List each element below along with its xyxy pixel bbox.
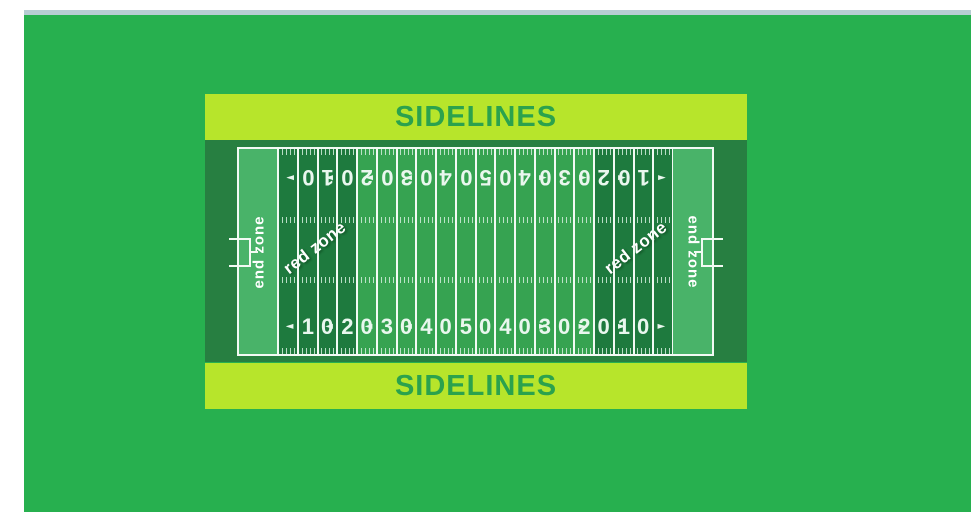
hash-tick bbox=[590, 277, 591, 283]
hash-tick bbox=[452, 348, 453, 354]
hash-tick bbox=[562, 217, 563, 223]
goal-post-right-prong-top bbox=[701, 238, 723, 240]
hash-tick bbox=[345, 277, 346, 283]
hash-tick bbox=[460, 277, 461, 283]
sideline-label-top: SIDELINES bbox=[395, 101, 557, 134]
hash-tick bbox=[420, 348, 421, 354]
hash-tick bbox=[665, 277, 666, 283]
hash-tick bbox=[491, 217, 492, 223]
hash-tick bbox=[523, 149, 524, 155]
hash-tick bbox=[487, 348, 488, 354]
hash-tick bbox=[562, 348, 563, 354]
hash-tick bbox=[558, 149, 559, 155]
yard-number: 40◄ bbox=[499, 166, 531, 188]
hash-tick bbox=[531, 217, 532, 223]
hash-tick bbox=[432, 217, 433, 223]
hash-tick bbox=[661, 348, 662, 354]
hash-tick bbox=[306, 217, 307, 223]
hash-tick bbox=[582, 277, 583, 283]
hash-tick bbox=[385, 277, 386, 283]
hash-tick bbox=[424, 217, 425, 223]
yard-arrow-icon: ► bbox=[286, 172, 294, 182]
hash-tick bbox=[622, 217, 623, 223]
hash-tick bbox=[369, 277, 370, 283]
illustration-canvas: SIDELINES end zone red zone red zone 10►… bbox=[24, 15, 971, 512]
hash-tick bbox=[282, 277, 283, 283]
end-zone-left: end zone bbox=[239, 149, 278, 354]
hash-tick bbox=[353, 149, 354, 155]
yard-line bbox=[415, 149, 417, 354]
hash-tick bbox=[618, 348, 619, 354]
hash-tick bbox=[464, 217, 465, 223]
hash-tick bbox=[333, 149, 334, 155]
hash-tick bbox=[282, 348, 283, 354]
hash-tick bbox=[626, 217, 627, 223]
hash-tick bbox=[637, 217, 638, 223]
hash-tick bbox=[511, 149, 512, 155]
yard-line bbox=[336, 149, 338, 354]
hash-tick bbox=[507, 277, 508, 283]
hash-tick bbox=[361, 149, 362, 155]
hash-tick bbox=[302, 348, 303, 354]
hash-tick bbox=[665, 149, 666, 155]
hash-tick bbox=[487, 149, 488, 155]
hash-tick bbox=[570, 149, 571, 155]
hash-tick bbox=[365, 277, 366, 283]
hash-tick bbox=[412, 277, 413, 283]
hash-tick bbox=[369, 217, 370, 223]
yard-line bbox=[297, 149, 299, 354]
hash-tick bbox=[444, 277, 445, 283]
yard-number-digit: 0 bbox=[420, 166, 432, 188]
hash-tick bbox=[408, 149, 409, 155]
hash-tick bbox=[539, 149, 540, 155]
hash-tick bbox=[487, 277, 488, 283]
hash-tick bbox=[428, 149, 429, 155]
hash-tick bbox=[472, 149, 473, 155]
hash-tick bbox=[491, 149, 492, 155]
hash-tick bbox=[306, 277, 307, 283]
yard-number-digit: 1 bbox=[637, 166, 649, 188]
hash-tick bbox=[282, 217, 283, 223]
hash-tick bbox=[598, 277, 599, 283]
hash-tick bbox=[353, 348, 354, 354]
hash-tick bbox=[385, 348, 386, 354]
hash-tick bbox=[452, 277, 453, 283]
hash-tick bbox=[637, 277, 638, 283]
hash-tick bbox=[408, 217, 409, 223]
hash-tick bbox=[349, 277, 350, 283]
hash-tick bbox=[483, 217, 484, 223]
yard-arrow-icon: ◄ bbox=[325, 322, 333, 332]
hash-tick bbox=[314, 217, 315, 223]
hash-tick bbox=[341, 217, 342, 223]
end-zone-right: end zone bbox=[673, 149, 712, 354]
yard-number: 20◄ bbox=[578, 166, 610, 188]
yard-line bbox=[652, 149, 654, 354]
hash-tick bbox=[400, 217, 401, 223]
hash-tick bbox=[602, 217, 603, 223]
hash-tick bbox=[353, 277, 354, 283]
hash-tick bbox=[519, 348, 520, 354]
yard-number-digit: 0 bbox=[578, 166, 590, 188]
hash-tick bbox=[464, 277, 465, 283]
hash-tick bbox=[314, 348, 315, 354]
hash-tick bbox=[381, 277, 382, 283]
hash-tick bbox=[657, 277, 658, 283]
hash-tick bbox=[444, 217, 445, 223]
hash-tick bbox=[539, 348, 540, 354]
hash-tick bbox=[590, 217, 591, 223]
hash-tick bbox=[393, 217, 394, 223]
hash-tick bbox=[294, 348, 295, 354]
hash-tick bbox=[325, 277, 326, 283]
hash-tick bbox=[428, 348, 429, 354]
yard-number-digit: 5 bbox=[460, 316, 472, 338]
hash-tick bbox=[468, 277, 469, 283]
hash-tick bbox=[400, 277, 401, 283]
hash-tick bbox=[373, 149, 374, 155]
hash-tick bbox=[329, 149, 330, 155]
hash-tick bbox=[460, 149, 461, 155]
yard-number-digit: 3 bbox=[381, 316, 393, 338]
goal-line bbox=[277, 149, 279, 354]
goal-post-right-stem bbox=[694, 251, 701, 253]
hash-tick bbox=[325, 217, 326, 223]
yard-number-digit: 5 bbox=[479, 166, 491, 188]
hash-tick bbox=[657, 149, 658, 155]
hash-tick bbox=[361, 277, 362, 283]
goal-post-right-prong-bottom bbox=[701, 265, 723, 267]
hash-tick bbox=[551, 217, 552, 223]
football-field: end zone red zone red zone 10►20►30►40►5… bbox=[205, 140, 747, 362]
yard-line bbox=[613, 149, 615, 354]
hash-tick bbox=[610, 217, 611, 223]
hash-tick bbox=[365, 149, 366, 155]
hash-tick bbox=[290, 277, 291, 283]
hash-tick bbox=[479, 348, 480, 354]
yard-arrow-icon: ◄ bbox=[658, 172, 666, 182]
hash-tick bbox=[645, 277, 646, 283]
hash-tick bbox=[448, 277, 449, 283]
hash-tick bbox=[302, 277, 303, 283]
hash-tick bbox=[329, 348, 330, 354]
hash-tick bbox=[385, 217, 386, 223]
hash-tick bbox=[558, 217, 559, 223]
hash-tick bbox=[499, 217, 500, 223]
hash-tick bbox=[626, 348, 627, 354]
hash-tick bbox=[460, 217, 461, 223]
hash-tick bbox=[464, 149, 465, 155]
hash-tick bbox=[400, 149, 401, 155]
hash-tick bbox=[519, 277, 520, 283]
hash-tick bbox=[381, 217, 382, 223]
yard-number: 10◄ bbox=[618, 166, 650, 188]
sideline-bar-bottom: SIDELINES bbox=[205, 363, 747, 409]
hash-tick bbox=[428, 217, 429, 223]
hash-tick bbox=[590, 149, 591, 155]
hash-tick bbox=[294, 149, 295, 155]
hash-tick bbox=[551, 149, 552, 155]
hash-tick bbox=[507, 217, 508, 223]
hash-tick bbox=[598, 217, 599, 223]
hash-tick bbox=[570, 217, 571, 223]
hash-tick bbox=[669, 277, 670, 283]
hash-tick bbox=[408, 348, 409, 354]
hash-tick bbox=[499, 277, 500, 283]
hash-tick bbox=[345, 348, 346, 354]
hash-tick bbox=[531, 149, 532, 155]
hash-tick bbox=[626, 277, 627, 283]
hash-tick bbox=[661, 217, 662, 223]
hash-tick bbox=[321, 277, 322, 283]
hash-tick bbox=[527, 277, 528, 283]
yard-number: 20► bbox=[578, 316, 610, 338]
hash-tick bbox=[408, 277, 409, 283]
hash-tick bbox=[389, 217, 390, 223]
hash-tick bbox=[472, 348, 473, 354]
hash-tick bbox=[373, 348, 374, 354]
goal-post-right-crossbar bbox=[701, 238, 703, 267]
hash-tick bbox=[404, 149, 405, 155]
hash-tick bbox=[570, 348, 571, 354]
hash-tick bbox=[543, 348, 544, 354]
hash-tick bbox=[325, 149, 326, 155]
hash-tick bbox=[626, 149, 627, 155]
hash-tick bbox=[630, 217, 631, 223]
hash-tick bbox=[547, 348, 548, 354]
hash-tick bbox=[566, 149, 567, 155]
yard-number: 40◄ bbox=[420, 316, 452, 338]
hash-tick bbox=[511, 217, 512, 223]
hash-tick bbox=[598, 348, 599, 354]
hash-tick bbox=[310, 217, 311, 223]
hash-tick bbox=[424, 277, 425, 283]
hash-tick bbox=[669, 217, 670, 223]
hash-tick bbox=[602, 149, 603, 155]
hash-tick bbox=[483, 277, 484, 283]
hash-tick bbox=[562, 277, 563, 283]
hash-tick bbox=[404, 348, 405, 354]
hash-tick bbox=[661, 149, 662, 155]
playing-field: end zone red zone red zone 10►20►30►40►5… bbox=[237, 147, 714, 356]
hash-tick bbox=[566, 277, 567, 283]
hash-tick bbox=[539, 217, 540, 223]
hash-tick bbox=[523, 277, 524, 283]
hash-tick bbox=[641, 149, 642, 155]
yard-arrow-icon: ► bbox=[325, 172, 333, 182]
hash-tick bbox=[341, 348, 342, 354]
hash-tick bbox=[472, 217, 473, 223]
hash-tick bbox=[286, 348, 287, 354]
hash-tick bbox=[645, 149, 646, 155]
hash-tick bbox=[499, 149, 500, 155]
hash-tick bbox=[578, 348, 579, 354]
yard-number-digit: 0 bbox=[302, 166, 314, 188]
hash-tick bbox=[649, 277, 650, 283]
hash-tick bbox=[483, 348, 484, 354]
hash-tick bbox=[369, 348, 370, 354]
hash-tick bbox=[468, 348, 469, 354]
hash-tick bbox=[428, 277, 429, 283]
hash-tick bbox=[602, 277, 603, 283]
hash-tick bbox=[547, 277, 548, 283]
hash-tick bbox=[641, 348, 642, 354]
hash-tick bbox=[630, 277, 631, 283]
hash-tick bbox=[570, 277, 571, 283]
hash-tick bbox=[590, 348, 591, 354]
hash-tick bbox=[511, 348, 512, 354]
hash-tick bbox=[440, 217, 441, 223]
hash-tick bbox=[558, 348, 559, 354]
hash-tick bbox=[440, 277, 441, 283]
hash-tick bbox=[551, 277, 552, 283]
hash-tick bbox=[519, 217, 520, 223]
hash-tick bbox=[582, 348, 583, 354]
hash-tick bbox=[325, 348, 326, 354]
hash-tick bbox=[618, 277, 619, 283]
hash-tick bbox=[657, 217, 658, 223]
hash-tick bbox=[630, 149, 631, 155]
hash-tick bbox=[393, 348, 394, 354]
hash-tick bbox=[586, 149, 587, 155]
hash-tick bbox=[479, 277, 480, 283]
yard-line bbox=[534, 149, 536, 354]
sideline-bar-top: SIDELINES bbox=[205, 94, 747, 140]
goal-post-left-prong-bottom bbox=[229, 265, 251, 267]
hash-tick bbox=[321, 217, 322, 223]
hash-tick bbox=[432, 149, 433, 155]
yard-number-digit: 3 bbox=[539, 316, 551, 338]
hash-tick bbox=[420, 277, 421, 283]
hash-tick bbox=[527, 348, 528, 354]
hash-tick bbox=[290, 348, 291, 354]
hash-tick bbox=[460, 348, 461, 354]
hash-tick bbox=[452, 217, 453, 223]
yard-number-digit: 0 bbox=[519, 316, 531, 338]
hash-tick bbox=[586, 348, 587, 354]
yard-number-digit: 4 bbox=[519, 166, 531, 188]
hash-tick bbox=[547, 149, 548, 155]
yard-arrow-icon: ► bbox=[658, 322, 666, 332]
hash-tick bbox=[420, 149, 421, 155]
hash-tick bbox=[452, 149, 453, 155]
goal-post-left-prong-top bbox=[229, 238, 251, 240]
hash-tick bbox=[578, 277, 579, 283]
hash-tick bbox=[618, 217, 619, 223]
hash-tick bbox=[404, 217, 405, 223]
hash-tick bbox=[290, 217, 291, 223]
hash-tick bbox=[389, 348, 390, 354]
hash-tick bbox=[665, 217, 666, 223]
hash-tick bbox=[649, 348, 650, 354]
hash-tick bbox=[523, 217, 524, 223]
hash-tick bbox=[531, 277, 532, 283]
hash-tick bbox=[329, 277, 330, 283]
hash-tick bbox=[547, 217, 548, 223]
yard-number-digit: 0 bbox=[499, 166, 511, 188]
hash-tick bbox=[606, 217, 607, 223]
hash-tick bbox=[487, 217, 488, 223]
hash-tick bbox=[385, 149, 386, 155]
hash-tick bbox=[562, 149, 563, 155]
yard-number: 40► bbox=[420, 166, 452, 188]
hash-tick bbox=[393, 149, 394, 155]
hash-tick bbox=[586, 277, 587, 283]
hash-tick bbox=[444, 149, 445, 155]
hash-tick bbox=[400, 348, 401, 354]
hash-tick bbox=[321, 149, 322, 155]
hash-tick bbox=[310, 277, 311, 283]
yard-number-digit: 0 bbox=[460, 166, 472, 188]
hash-tick bbox=[507, 149, 508, 155]
yard-arrow-icon: ► bbox=[404, 172, 412, 182]
hash-tick bbox=[598, 149, 599, 155]
hash-tick bbox=[578, 149, 579, 155]
hash-tick bbox=[302, 149, 303, 155]
hash-tick bbox=[345, 149, 346, 155]
hash-tick bbox=[389, 149, 390, 155]
hash-tick bbox=[649, 217, 650, 223]
yard-number-digit: 4 bbox=[499, 316, 511, 338]
hash-tick bbox=[483, 149, 484, 155]
hash-tick bbox=[523, 348, 524, 354]
hash-tick bbox=[479, 149, 480, 155]
hash-tick bbox=[393, 277, 394, 283]
yard-number-digit: 4 bbox=[420, 316, 432, 338]
hash-tick bbox=[302, 217, 303, 223]
hash-tick bbox=[345, 217, 346, 223]
hash-tick bbox=[582, 149, 583, 155]
hash-tick bbox=[321, 348, 322, 354]
hash-tick bbox=[539, 277, 540, 283]
hash-tick bbox=[622, 348, 623, 354]
hash-tick bbox=[622, 149, 623, 155]
yard-arrow-icon: ◄ bbox=[286, 322, 294, 332]
hash-tick bbox=[527, 217, 528, 223]
hash-tick bbox=[448, 348, 449, 354]
hash-tick bbox=[543, 149, 544, 155]
yards-area: red zone red zone 10►20►30►40►5040◄30◄20… bbox=[278, 149, 673, 354]
yard-number-digit: 0 bbox=[381, 166, 393, 188]
yard-number-digit: 4 bbox=[440, 166, 452, 188]
hash-tick bbox=[527, 149, 528, 155]
hash-tick bbox=[503, 217, 504, 223]
hash-tick bbox=[637, 348, 638, 354]
hash-tick bbox=[606, 277, 607, 283]
yard-number-digit: 0 bbox=[539, 166, 551, 188]
hash-tick bbox=[551, 348, 552, 354]
yard-number-digit: 2 bbox=[341, 316, 353, 338]
hash-tick bbox=[314, 149, 315, 155]
hash-tick bbox=[610, 348, 611, 354]
hash-tick bbox=[464, 348, 465, 354]
hash-tick bbox=[507, 348, 508, 354]
hash-tick bbox=[381, 348, 382, 354]
hash-tick bbox=[290, 149, 291, 155]
yard-number: 50 bbox=[460, 316, 492, 338]
hash-tick bbox=[286, 277, 287, 283]
hash-tick bbox=[499, 348, 500, 354]
hash-tick bbox=[412, 348, 413, 354]
yard-number-digit: 0 bbox=[598, 316, 610, 338]
hash-tick bbox=[586, 217, 587, 223]
hash-tick bbox=[389, 277, 390, 283]
hash-tick bbox=[491, 348, 492, 354]
hash-tick bbox=[294, 217, 295, 223]
hash-tick bbox=[365, 348, 366, 354]
hash-tick bbox=[645, 217, 646, 223]
